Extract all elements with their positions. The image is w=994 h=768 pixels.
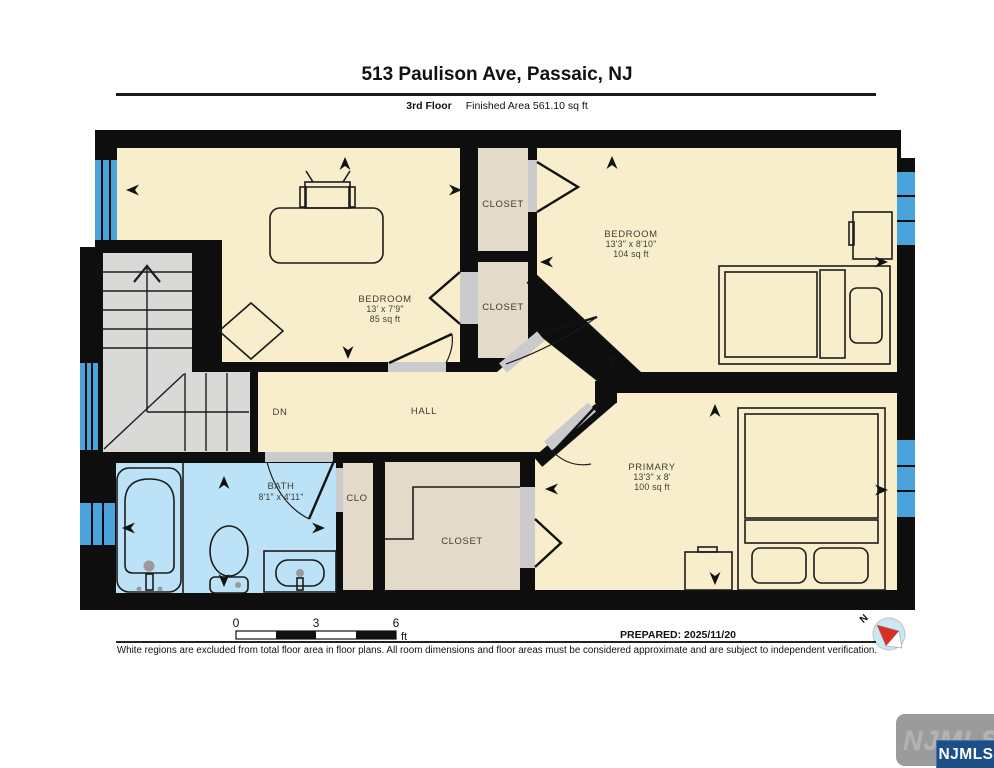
page-title: 513 Paulison Ave, Passaic, NJ — [0, 64, 994, 86]
window-bath — [80, 503, 115, 545]
wall-notch — [901, 130, 915, 158]
closet-bottom-door-gap — [520, 487, 535, 568]
closet-small-label: CLO — [346, 493, 367, 504]
floor-plan-page: BEDROOM 13' x 7'9" 85 sq ft BEDROOM 13'3… — [0, 0, 994, 768]
hall-label: HALL — [411, 406, 437, 417]
bedroom-right-dims: 13'3" x 8'10" — [606, 239, 657, 249]
scale-tick-6: 6 — [393, 616, 400, 630]
footer-divider — [116, 641, 876, 643]
finished-area-label: Finished Area 561.10 sq ft — [466, 100, 588, 112]
closet-top-door-gap — [528, 160, 537, 212]
closet-mid-door-gap — [460, 272, 478, 324]
clo-door-gap — [336, 468, 343, 512]
floor-label: 3rd Floor — [406, 100, 452, 112]
primary-area: 100 sq ft — [634, 482, 670, 492]
bedroom-left-dims: 13' x 7'9" — [366, 304, 403, 314]
window-bedroom-right — [897, 172, 915, 245]
subtitle: 3rd Floor Finished Area 561.10 sq ft — [0, 100, 994, 112]
closet-top-label: CLOSET — [482, 199, 524, 210]
scale-tick-3: 3 — [313, 616, 320, 630]
bath-dims: 8'1" x 4'11" — [258, 492, 303, 502]
window-primary — [897, 440, 915, 517]
stairs-dn-label: DN — [273, 407, 288, 418]
bedroom-right-area: 104 sq ft — [613, 249, 649, 259]
closet-mid-label: CLOSET — [482, 302, 524, 313]
closet-small-floor — [343, 463, 373, 590]
bath-door-gap — [265, 452, 333, 462]
closet-bottom-label: CLOSET — [441, 536, 483, 547]
njmls-logo-badge: NJMLS — [936, 740, 994, 768]
compass-north-label: N — [858, 613, 871, 626]
prepared-date: PREPARED: 2025/11/20 — [500, 629, 736, 641]
bedroom-left-door-gap — [388, 362, 446, 372]
title-divider — [116, 93, 876, 96]
primary-dims: 13'3" x 8' — [633, 472, 670, 482]
scale-bar: 0 3 6 ft — [233, 616, 407, 643]
bath-label: BATH — [267, 481, 294, 492]
disclaimer-text: White regions are excluded from total fl… — [0, 645, 994, 656]
window-bedroom-left — [95, 160, 117, 240]
closet-bottom-floor — [385, 462, 520, 590]
bedroom-left-area: 85 sq ft — [370, 314, 401, 324]
scale-tick-0: 0 — [233, 616, 240, 630]
window-stairs — [80, 363, 98, 450]
